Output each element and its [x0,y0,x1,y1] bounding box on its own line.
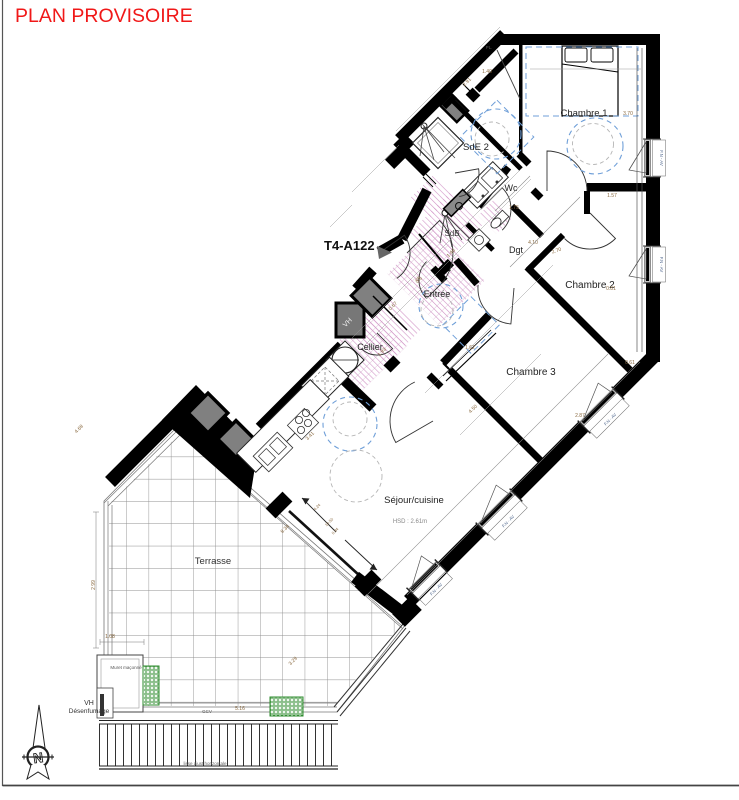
svg-text:lisse ajust horizontale: lisse ajust horizontale [183,761,227,766]
svg-text:1.75: 1.75 [509,205,519,211]
svg-text:GCV: GCV [202,709,212,714]
svg-text:Wc: Wc [505,183,518,193]
svg-text:Séjour/cuisine: Séjour/cuisine [384,495,444,506]
svg-text:PL.: PL. [486,45,493,50]
svg-text:1.57: 1.57 [607,193,617,199]
svg-text:N: N [32,750,44,766]
svg-text:HSD : 2.61m: HSD : 2.61m [393,519,427,525]
svg-text:PLAN PROVISOIRE: PLAN PROVISOIRE [15,5,193,27]
svg-text:Entrée: Entrée [424,289,451,299]
svg-text:Dgt: Dgt [509,245,524,255]
svg-text:Désenfumage: Désenfumage [69,708,110,715]
svg-text:Terrasse: Terrasse [195,556,231,567]
svg-text:F.N - AV: F.N - AV [659,150,664,166]
svg-text:0.61: 0.61 [625,360,635,366]
svg-text:SdE 2: SdE 2 [463,142,489,153]
svg-text:5.16: 5.16 [235,706,245,712]
svg-text:Chambre 3: Chambre 3 [506,367,556,378]
svg-text:VH: VH [84,700,94,707]
svg-text:SdB: SdB [444,229,459,238]
svg-text:1.40: 1.40 [482,69,492,75]
svg-text:T4-A122: T4-A122 [324,238,375,253]
svg-text:0.81: 0.81 [606,286,616,292]
svg-text:3.70: 3.70 [623,111,633,117]
svg-text:Chambre 1: Chambre 1 [561,108,608,119]
svg-text:Muret maçonné: Muret maçonné [110,665,142,670]
svg-text:F.N - AV: F.N - AV [659,257,664,273]
svg-text:1.08: 1.08 [105,634,115,640]
svg-text:4.10: 4.10 [528,240,538,246]
svg-text:2.99: 2.99 [91,580,97,590]
